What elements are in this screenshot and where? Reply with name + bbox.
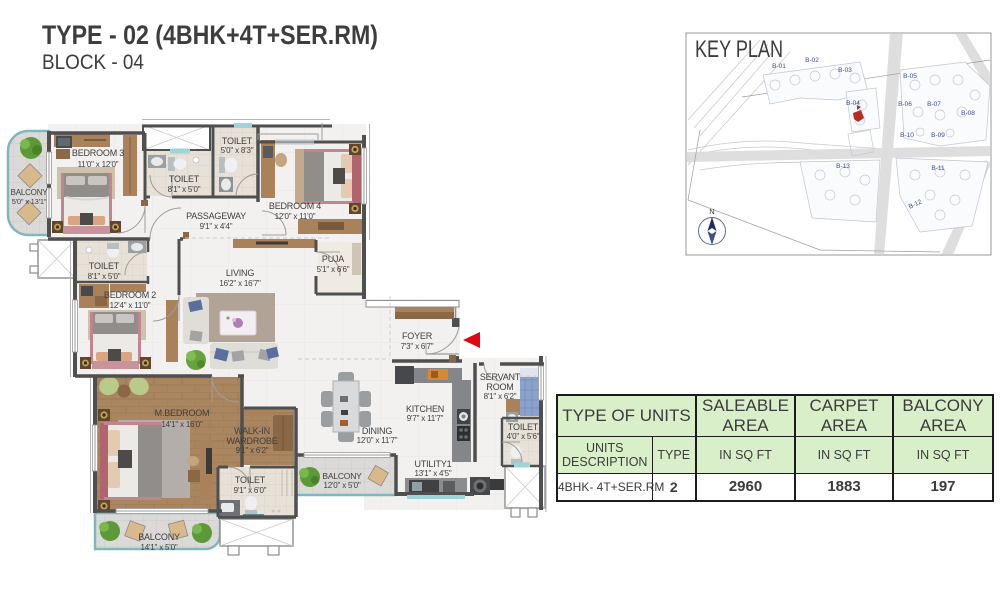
- svg-text:B-03: B-03: [838, 67, 852, 74]
- svg-text:B-04: B-04: [846, 100, 860, 107]
- svg-text:N: N: [709, 207, 714, 216]
- svg-text:B-07: B-07: [927, 101, 941, 108]
- svg-text:B-11: B-11: [931, 165, 945, 172]
- svg-text:B-01: B-01: [772, 63, 786, 70]
- svg-text:B-02: B-02: [805, 57, 819, 64]
- svg-text:B-08: B-08: [961, 110, 975, 117]
- svg-text:B-06: B-06: [898, 101, 912, 108]
- svg-text:B-13: B-13: [836, 163, 850, 170]
- svg-text:B-10: B-10: [900, 132, 914, 139]
- svg-text:KEY PLAN: KEY PLAN: [695, 36, 783, 63]
- svg-text:B-05: B-05: [903, 73, 917, 80]
- svg-text:B-09: B-09: [931, 132, 945, 139]
